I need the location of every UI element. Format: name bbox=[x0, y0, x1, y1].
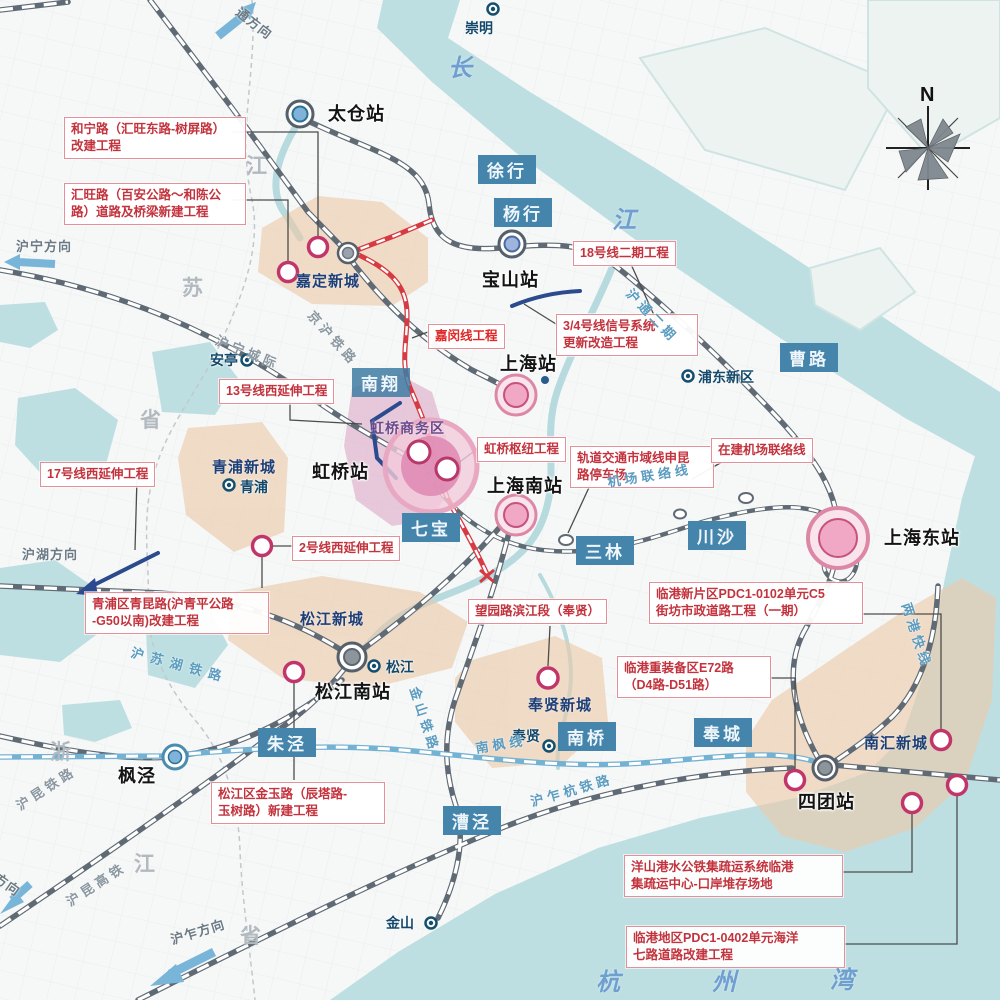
water-label-chang: 长 bbox=[448, 48, 472, 83]
newtown-label-nanhui: 南汇新城 bbox=[864, 732, 928, 753]
province-label-su: 苏 bbox=[182, 272, 203, 302]
direction-label-huhu: 沪湖方向 bbox=[22, 544, 78, 563]
province-label-zhe: 浙 bbox=[50, 736, 71, 766]
town-box-zhujing: 朱泾 bbox=[258, 728, 316, 757]
project-box-hongqiao-hub: 虹桥枢纽工程 bbox=[477, 437, 566, 462]
project-box-jiamin-line: 嘉闵线工程 bbox=[428, 324, 505, 349]
water-label-hang: 杭 bbox=[596, 962, 620, 997]
station-label-songjiang-south: 松江南站 bbox=[315, 678, 391, 704]
town-box-fengcheng: 奉城 bbox=[694, 718, 752, 747]
newtown-label-qingpu: 青浦新城 bbox=[212, 456, 276, 477]
project-box-lingang-pdc1-0102: 临港新片区PDC1-0102单元C5 街坊市政道路工程（一期） bbox=[649, 582, 863, 624]
newtown-label-fengxian: 奉贤新城 bbox=[528, 694, 592, 715]
project-box-line17-west-ext: 17号线西延伸工程 bbox=[40, 462, 155, 487]
project-box-airport-link-line: 在建机场联络线 bbox=[711, 438, 813, 463]
town-box-nanqiao: 南桥 bbox=[558, 722, 616, 751]
newtown-label-jiading: 嘉定新城 bbox=[296, 270, 360, 291]
water-label-zhou: 州 bbox=[712, 962, 736, 997]
newtown-label-songjiang: 松江新城 bbox=[300, 608, 364, 629]
town-box-nanxiang: 南翔 bbox=[352, 368, 410, 397]
town-box-xuhang: 徐行 bbox=[478, 155, 536, 184]
town-box-caojing: 漕泾 bbox=[443, 806, 501, 835]
station-label-shanghai-south: 上海南站 bbox=[487, 472, 563, 498]
station-label-shanghai-east: 上海东站 bbox=[884, 524, 960, 550]
project-box-line2-west-ext: 2号线西延伸工程 bbox=[292, 536, 400, 561]
project-box-qingkunlu: 青浦区青昆路(沪青平公路 -G50以南)改建工程 bbox=[85, 592, 269, 634]
town-box-chuansha: 川沙 bbox=[688, 521, 746, 550]
province-label-sheng2: 省 bbox=[240, 920, 261, 950]
project-box-line18-phase2: 18号线二期工程 bbox=[573, 241, 676, 266]
station-label-shanghai: 上海站 bbox=[500, 350, 557, 376]
place-label-songjiang: 松江 bbox=[386, 657, 414, 677]
province-label-jiang2: 江 bbox=[134, 848, 155, 878]
project-box-line13-west-ext: 13号线西延伸工程 bbox=[219, 379, 334, 404]
direction-label-huning: 沪宁方向 bbox=[16, 236, 72, 255]
place-label-jinshan: 金山 bbox=[386, 913, 414, 933]
province-label-sheng1: 省 bbox=[140, 404, 161, 434]
project-box-jinyulu: 松江区金玉路（辰塔路- 玉树路）新建工程 bbox=[211, 782, 385, 824]
town-box-yanghang: 杨行 bbox=[494, 198, 552, 227]
project-box-yangshan-port: 洋山港水公铁集疏运系统临港 集疏运中心-口岸堆存场地 bbox=[624, 855, 843, 897]
shanghai-rail-projects-map: 和宁路（汇旺东路-树屏路） 改建工程 汇旺路（百安公路～和陈公 路）道路及桥梁新… bbox=[0, 0, 1000, 1000]
station-label-situan: 四团站 bbox=[798, 788, 855, 814]
town-box-sanlin: 三林 bbox=[576, 536, 634, 565]
project-box-lingang-e72: 临港重装备区E72路 （D4路-D51路） bbox=[617, 656, 771, 698]
town-box-qibao: 七宝 bbox=[402, 513, 460, 542]
project-box-huiwanglu: 汇旺路（百安公路～和陈公 路）道路及桥梁新建工程 bbox=[64, 183, 246, 225]
place-label-pudong-new-area: 浦东新区 bbox=[698, 367, 754, 387]
newtown-label-hongqiao-cbd: 虹桥商务区 bbox=[370, 418, 445, 438]
compass-rose-icon bbox=[886, 106, 970, 190]
station-label-baoshan: 宝山站 bbox=[482, 266, 539, 292]
project-box-wangyuanlu: 望园路滨江段（奉贤） bbox=[468, 599, 607, 624]
province-label-jiang1: 江 bbox=[246, 150, 267, 180]
town-box-caolu: 曹路 bbox=[780, 343, 838, 372]
place-label-chongming: 崇明 bbox=[465, 18, 493, 38]
station-label-fengjing: 枫泾 bbox=[118, 762, 156, 788]
compass-north-label: N bbox=[920, 84, 934, 107]
project-box-heninglu: 和宁路（汇旺东路-树屏路） 改建工程 bbox=[64, 117, 246, 159]
place-label-qingpu: 青浦 bbox=[240, 477, 268, 497]
water-label-jiang: 江 bbox=[612, 200, 636, 235]
water-label-wan: 湾 bbox=[830, 960, 854, 995]
station-label-taicang: 太仓站 bbox=[328, 100, 385, 126]
station-label-hongqiao: 虹桥站 bbox=[312, 458, 369, 484]
